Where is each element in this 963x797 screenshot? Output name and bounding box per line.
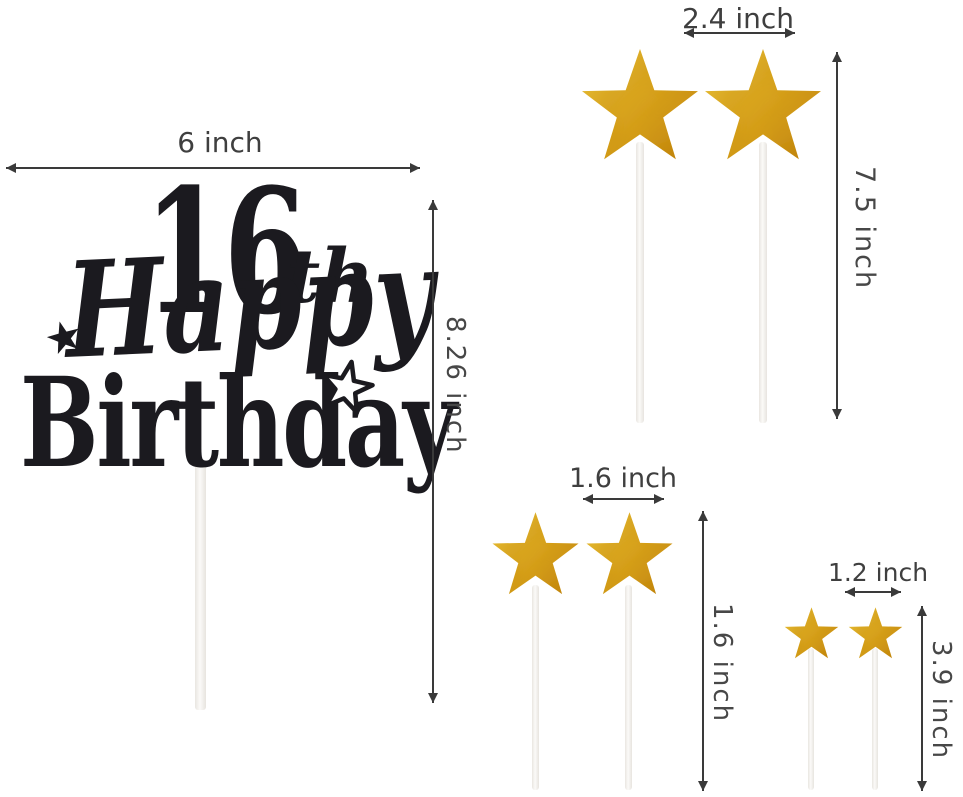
gold-star-medium-1 <box>488 510 583 605</box>
gold-star-small-2 <box>846 606 905 665</box>
small-star-height-label: 3.9 inch <box>926 640 956 760</box>
gold-star-large-1 <box>576 46 704 174</box>
large-star-stick-1 <box>636 142 644 423</box>
gold-star-medium-2 <box>582 510 677 605</box>
sparkle-star-icon <box>46 320 82 356</box>
small-star-stick-2 <box>872 648 878 790</box>
gold-star-small-1 <box>782 606 841 665</box>
large-star-width-arrow <box>684 32 795 34</box>
gold-star-large-2 <box>699 46 827 174</box>
large-star-height-label: 7.5 inch <box>849 166 880 290</box>
topper-word-birthday: Birthday <box>20 362 455 486</box>
topper-stick <box>195 462 206 710</box>
large-star-height-arrow <box>836 52 838 419</box>
medium-star-height-label: 1.6 inch <box>707 603 737 723</box>
medium-star-stick-1 <box>532 585 539 790</box>
large-star-stick-2 <box>759 142 767 423</box>
small-star-width-arrow <box>845 591 901 593</box>
topper-height-arrow <box>432 200 434 703</box>
topper-height-label: 8.26 inch <box>440 316 470 455</box>
medium-star-width-arrow <box>583 498 664 500</box>
product-dimension-diagram: 6 inch 16 th Happy Birthday 8.26 inch 2.… <box>0 0 963 797</box>
outline-star-icon <box>318 360 374 416</box>
small-star-stick-1 <box>808 648 814 790</box>
small-star-height-arrow <box>921 606 923 791</box>
medium-star-height-arrow <box>702 511 704 791</box>
medium-star-stick-2 <box>625 585 632 790</box>
medium-star-width-label: 1.6 inch <box>543 463 703 494</box>
small-star-width-label: 1.2 inch <box>798 558 958 587</box>
